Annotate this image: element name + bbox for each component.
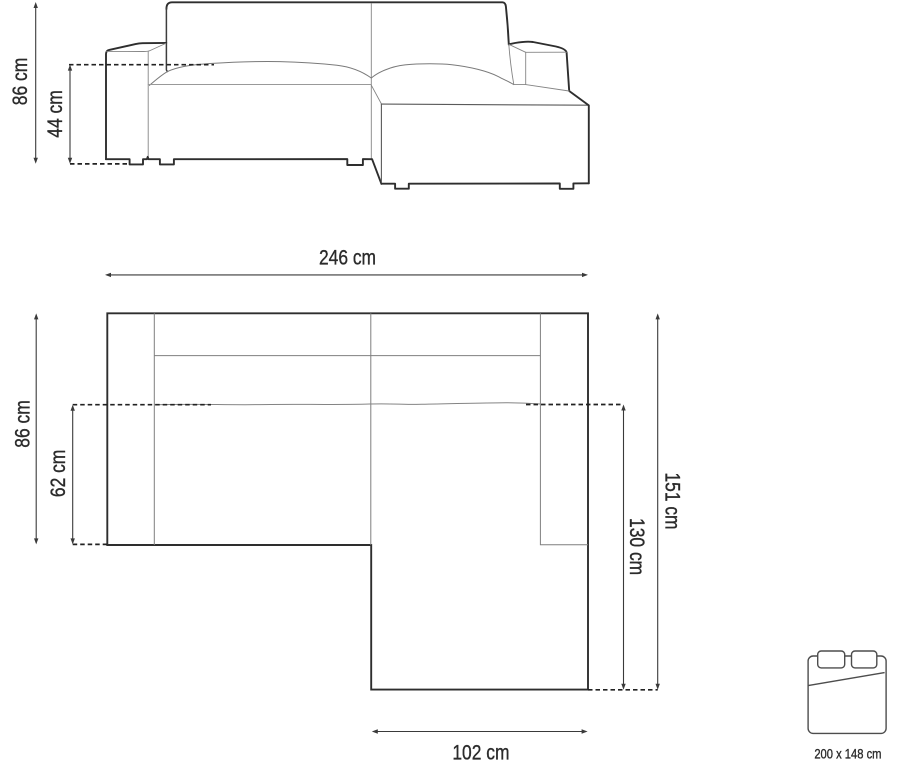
svg-text:86 cm: 86 cm [10, 58, 33, 105]
svg-text:130 cm: 130 cm [625, 518, 648, 575]
svg-text:86 cm: 86 cm [12, 400, 35, 447]
svg-text:151 cm: 151 cm [660, 472, 683, 529]
svg-text:200 x 148 cm: 200 x 148 cm [814, 746, 881, 761]
svg-text:246 cm: 246 cm [319, 247, 376, 270]
svg-text:62 cm: 62 cm [47, 450, 70, 497]
svg-text:44 cm: 44 cm [45, 90, 68, 137]
svg-text:102 cm: 102 cm [452, 742, 509, 765]
